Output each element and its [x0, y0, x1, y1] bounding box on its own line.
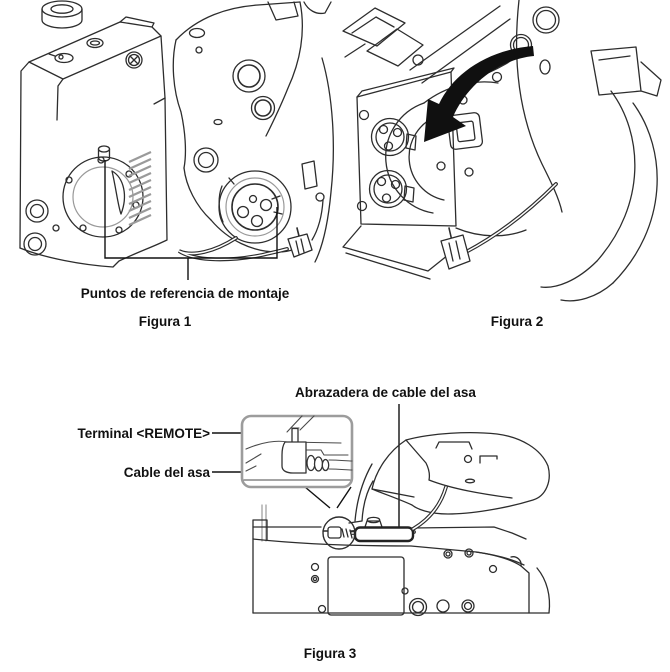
manual-illustration-page: Puntos de referencia de montaje Figura 1… [0, 0, 670, 672]
figure3-cable-clamp-label: Abrazadera de cable del asa [295, 385, 476, 400]
figure3-handle-cable-label: Cable del asa [30, 465, 210, 480]
figure3-caption: Figura 3 [255, 646, 405, 661]
viewfinder-connector [219, 171, 291, 243]
line-art-illustrations [0, 0, 670, 672]
figure3-remote-terminal-label: Terminal <REMOTE> [30, 426, 210, 441]
figure1-mount-points-label: Puntos de referencia de montaje [40, 286, 330, 301]
figure3-illustration [212, 404, 550, 616]
figure1-illustration [20, 1, 333, 280]
figure2-illustration [343, 0, 661, 301]
figure1-caption: Figura 1 [90, 314, 240, 329]
figure2-caption: Figura 2 [442, 314, 592, 329]
cable-clamp [355, 528, 413, 542]
